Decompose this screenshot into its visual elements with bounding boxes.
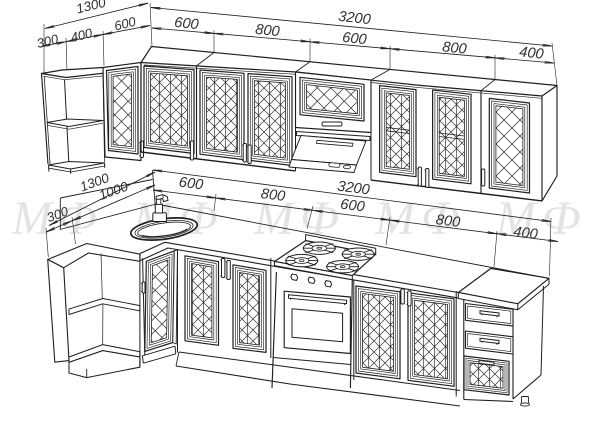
svg-text:800: 800: [435, 212, 461, 231]
svg-text:400: 400: [518, 44, 544, 62]
svg-text:600: 600: [178, 175, 204, 194]
svg-text:Ф: Ф: [542, 192, 581, 245]
svg-text:3200: 3200: [337, 9, 371, 28]
svg-text:600: 600: [339, 197, 365, 216]
svg-text:М: М: [374, 192, 418, 245]
svg-text:600: 600: [173, 15, 199, 33]
svg-text:600: 600: [341, 30, 367, 48]
svg-text:800: 800: [441, 39, 467, 57]
svg-text:400: 400: [512, 224, 538, 243]
svg-text:800: 800: [254, 22, 280, 40]
svg-text:800: 800: [260, 186, 286, 205]
